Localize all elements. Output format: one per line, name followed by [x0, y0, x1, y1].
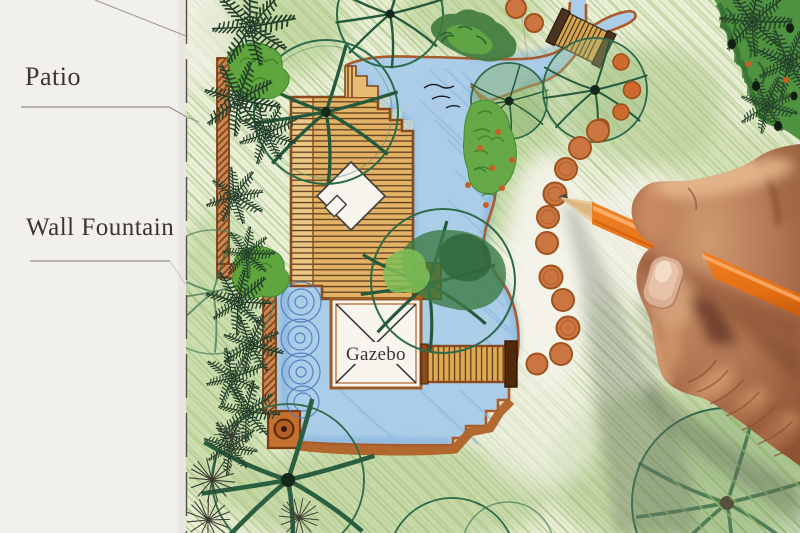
- svg-text:Gazebo: Gazebo: [346, 344, 406, 365]
- svg-text:Wall Fountain: Wall Fountain: [26, 214, 174, 241]
- svg-text:Patio: Patio: [25, 62, 81, 91]
